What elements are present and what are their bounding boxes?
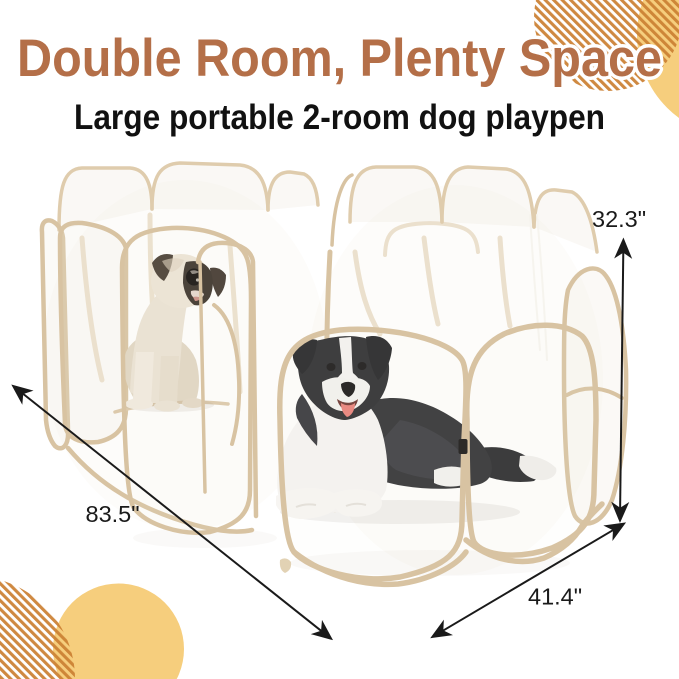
svg-text:Large portable 2-room dog play: Large portable 2-room dog playpen xyxy=(74,98,605,137)
svg-text:41.4": 41.4" xyxy=(528,584,582,610)
svg-text:32.3": 32.3" xyxy=(592,206,646,232)
svg-text:Double Room, Plenty Space: Double Room, Plenty Space xyxy=(17,29,662,88)
svg-text:83.5": 83.5" xyxy=(86,501,140,527)
